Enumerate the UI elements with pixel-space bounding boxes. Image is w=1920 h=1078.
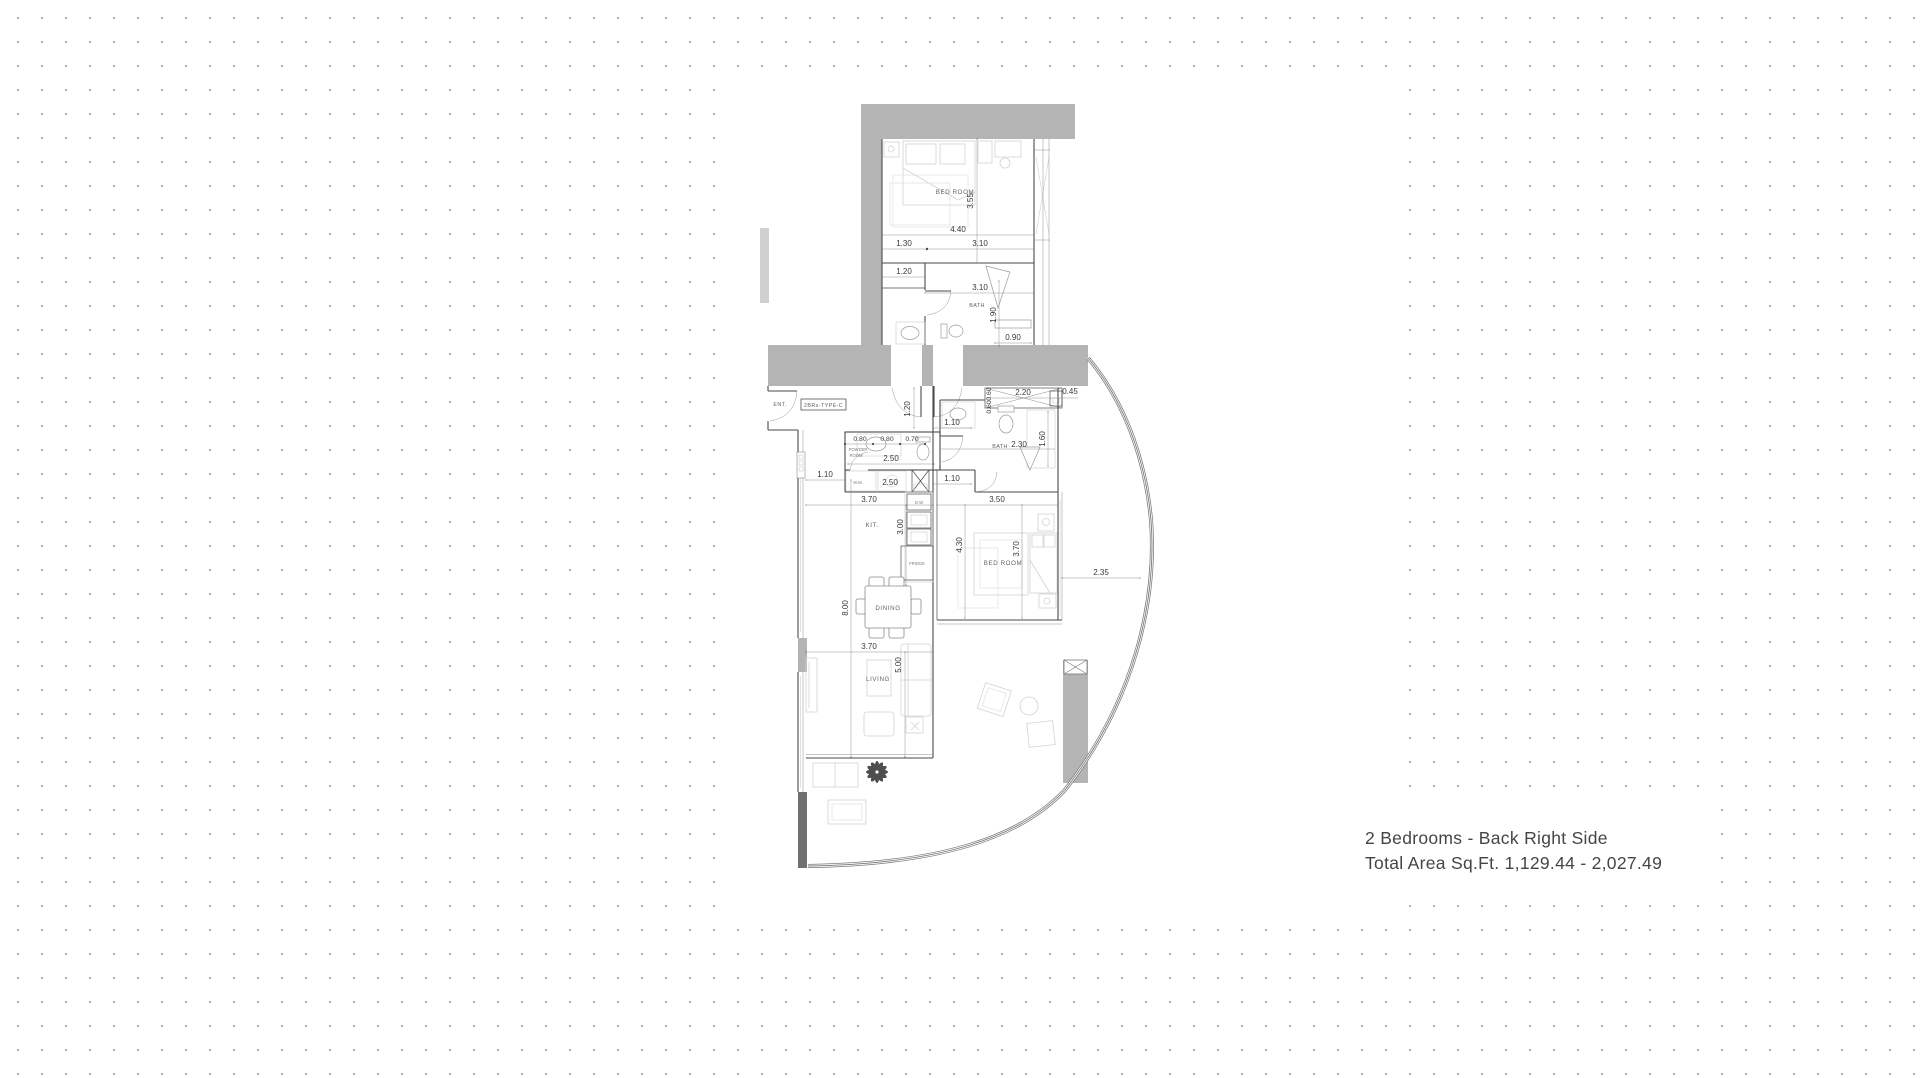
dishwasher-label: D.W <box>915 500 923 505</box>
unit-type-label: 2BRs-TYPE-C <box>804 403 843 409</box>
plan-caption: 2 Bedrooms - Back Right Side Total Area … <box>1365 826 1662 876</box>
dim-bedroom1-width: 4.40 <box>950 225 966 234</box>
dim-bath1-depth: 1.90 <box>989 307 998 323</box>
dim-bath2-width: 2.30 <box>1011 440 1027 449</box>
dim-powder-b: 0.80 <box>880 436 893 443</box>
caption-area: Total Area Sq.Ft. 1,129.44 - 2,027.49 <box>1365 851 1662 876</box>
dim-laundry-left: 1.10 <box>817 470 833 479</box>
fridge-label: FRIDGE <box>909 561 925 566</box>
bedroom1-label: BED ROOM <box>936 189 975 196</box>
dim-bedroom2-left: 4.30 <box>955 537 964 553</box>
dim-bedroom2-right: 3.70 <box>1012 541 1021 557</box>
dim-tub: 0.90 <box>1005 333 1021 342</box>
floor-plan: 4.40 1.30 3.10 3.55 1.20 3.10 1.90 0.90 … <box>745 90 1175 880</box>
dim-closet2-a: 0.60 <box>986 387 993 400</box>
plant-icon <box>866 761 888 783</box>
dim-bedroom1-left: 1.30 <box>896 239 912 248</box>
powder-room-label-2: ROOM <box>849 453 863 458</box>
caption-title: 2 Bedrooms - Back Right Side <box>1365 826 1662 851</box>
dining-label: DINING <box>875 605 900 612</box>
dim-laundry-width: 2.50 <box>882 478 898 487</box>
dim-living-height: 8.00 <box>841 600 850 616</box>
bath1-label: BATH <box>969 303 985 309</box>
dim-closet2-b: 0.60 <box>986 400 993 413</box>
dim-corridor2: 1.10 <box>944 474 960 483</box>
dim-hall-entry: 1.20 <box>903 401 912 417</box>
living-label: LIVING <box>866 676 890 683</box>
bath2-label: BATH <box>992 444 1008 450</box>
dim-hall-width: 1.10 <box>944 418 960 427</box>
dim-kitchen-width: 3.70 <box>861 495 877 504</box>
dim-bath1-width: 3.10 <box>972 283 988 292</box>
dim-powder-width: 2.50 <box>883 454 899 463</box>
dim-shower: 1.60 <box>1038 431 1047 447</box>
dim-bedroom2-width: 3.50 <box>989 495 1005 504</box>
dim-balcony-right: 2.35 <box>1093 568 1109 577</box>
dim-bedroom1-right: 3.10 <box>972 239 988 248</box>
dim-powder-c: 0.70 <box>905 436 918 443</box>
bedroom2-label: BED ROOM <box>984 560 1023 567</box>
dim-powder-a: 0.80 <box>853 436 866 443</box>
furniture <box>806 141 1057 824</box>
kitchen-label: KIT. <box>865 522 878 529</box>
powder-room-label-1: POWDER <box>849 447 868 452</box>
page-canvas: { "caption": { "line1": "2 Bedrooms - Ba… <box>0 0 1920 1078</box>
dim-wall-gap: 0.45 <box>1062 387 1078 396</box>
dim-living-depth: 5.00 <box>894 657 903 673</box>
entry-label: ENT. <box>773 402 786 408</box>
interior-walls <box>768 139 1062 792</box>
dim-closet1: 1.20 <box>896 267 912 276</box>
dim-kitchen-depth: 3.00 <box>896 519 905 535</box>
dim-living-width: 3.70 <box>861 642 877 651</box>
washing-machine-label: W.M. <box>853 480 863 485</box>
dim-closet2-width: 2.20 <box>1015 388 1031 397</box>
